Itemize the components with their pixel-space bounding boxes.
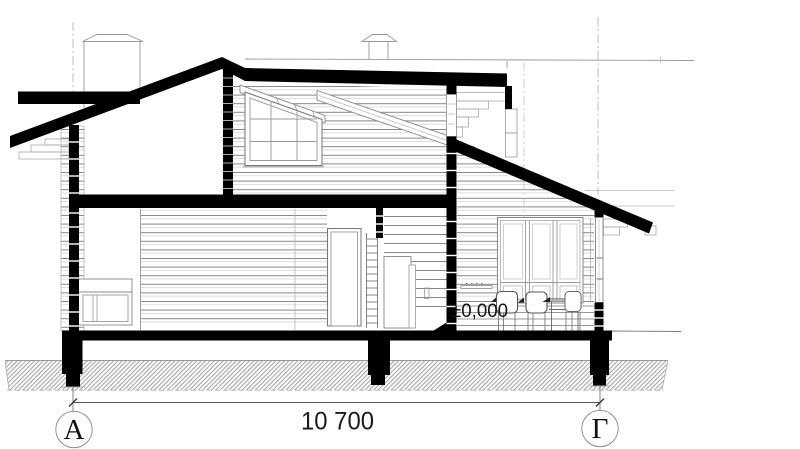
svg-text:±0,000: ±0,000: [451, 300, 508, 322]
svg-text:А: А: [64, 414, 85, 446]
svg-text:Г: Г: [592, 413, 609, 445]
svg-text:10 700: 10 700: [301, 408, 374, 436]
